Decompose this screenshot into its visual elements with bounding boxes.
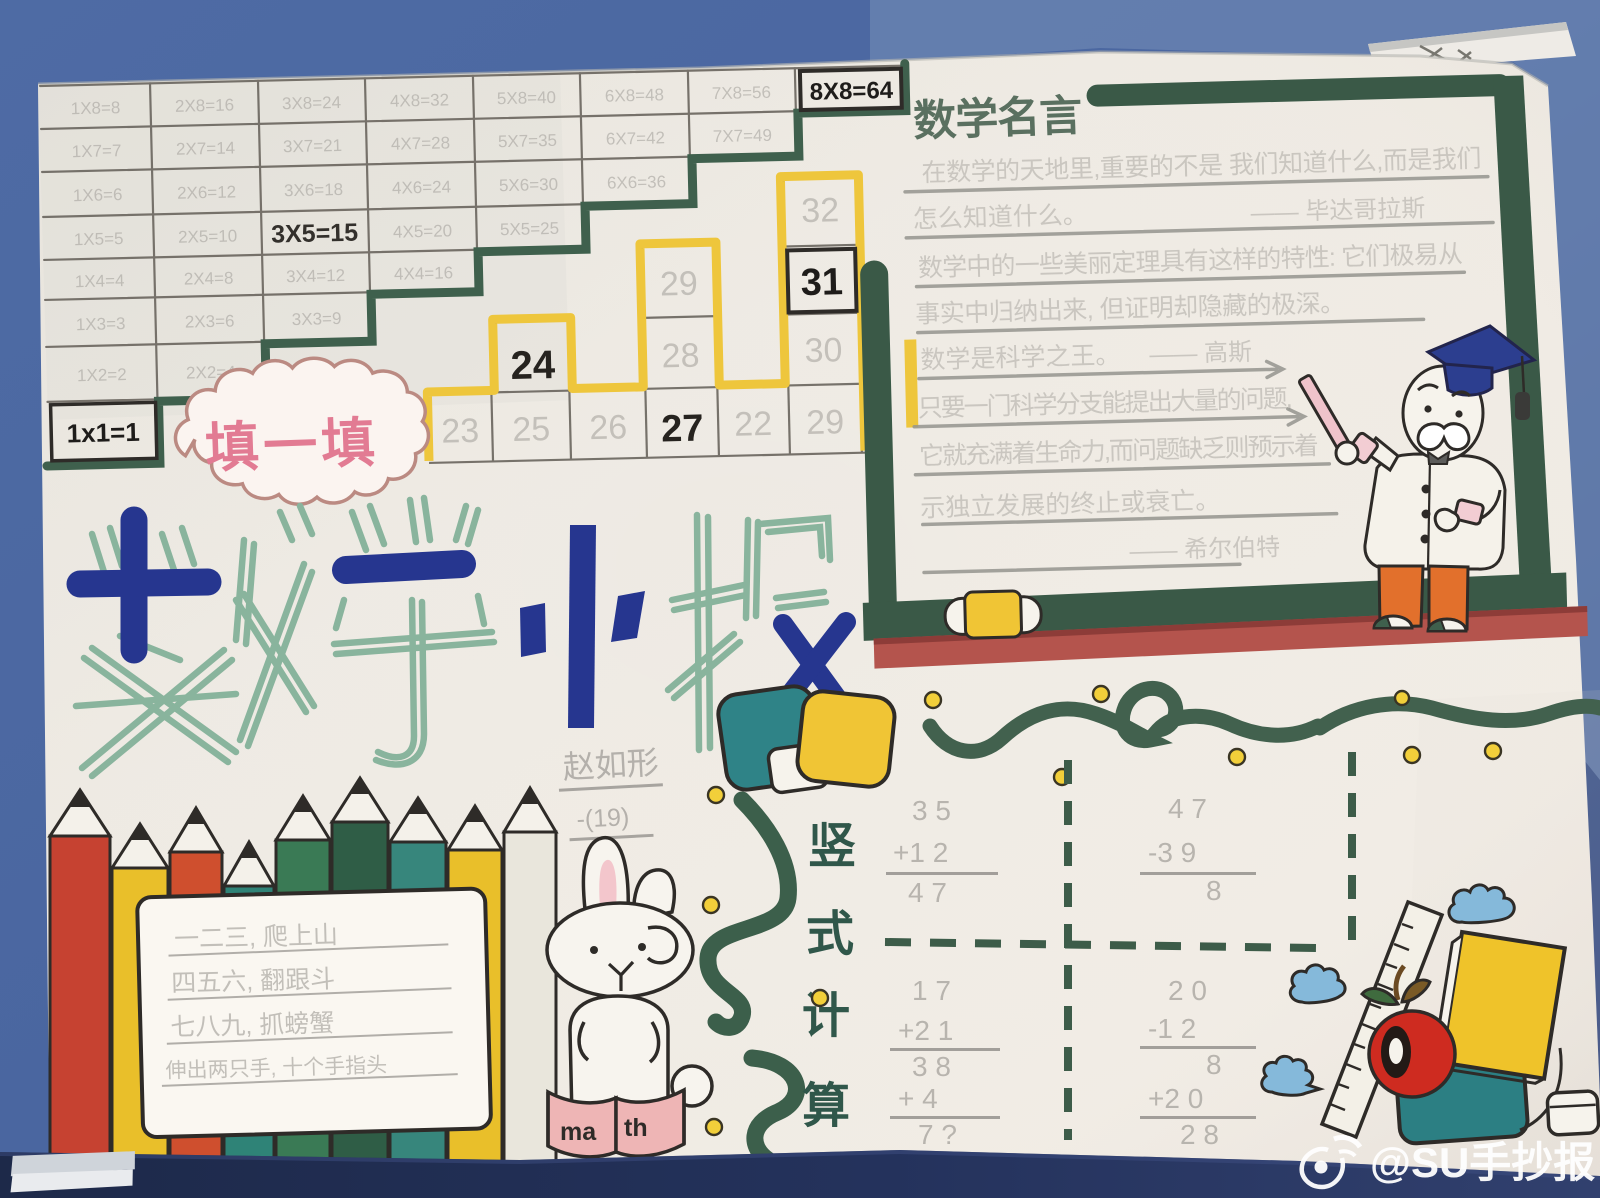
svg-text:3 5: 3 5 xyxy=(912,795,951,826)
svg-text:七八九, 抓螃蟹: 七八九, 抓螃蟹 xyxy=(170,1009,335,1041)
svg-text:25: 25 xyxy=(512,410,551,449)
svg-text:6X8=48: 6X8=48 xyxy=(605,85,665,105)
svg-text:22: 22 xyxy=(734,405,773,444)
svg-text:2X5=10: 2X5=10 xyxy=(178,226,238,246)
svg-text:5X6=30: 5X6=30 xyxy=(499,175,559,195)
svg-text:4X8=32: 4X8=32 xyxy=(390,90,450,110)
svg-text:1X3=3: 1X3=3 xyxy=(76,314,126,334)
svg-text:1X5=5: 1X5=5 xyxy=(74,229,124,249)
svg-text:30: 30 xyxy=(804,331,843,370)
svg-text:式: 式 xyxy=(806,908,854,961)
svg-text:24: 24 xyxy=(510,343,556,388)
svg-text:8X8=64: 8X8=64 xyxy=(809,77,894,106)
svg-text:1X7=7: 1X7=7 xyxy=(72,141,122,161)
svg-text:2X7=14: 2X7=14 xyxy=(176,138,236,158)
svg-text:-1 2: -1 2 xyxy=(1148,1013,1196,1044)
svg-text:8: 8 xyxy=(1206,1049,1222,1080)
svg-text:+2 0: +2 0 xyxy=(1148,1083,1203,1114)
svg-text:-(19): -(19) xyxy=(576,803,630,834)
svg-text:3X8=24: 3X8=24 xyxy=(282,93,342,113)
svg-text:29: 29 xyxy=(660,265,699,304)
svg-text:1X4=4: 1X4=4 xyxy=(75,271,125,291)
svg-text:3X7=21: 3X7=21 xyxy=(283,136,343,156)
svg-text:5X5=25: 5X5=25 xyxy=(500,219,560,239)
svg-text:1x1=1: 1x1=1 xyxy=(66,417,140,449)
svg-text:28: 28 xyxy=(661,337,700,376)
svg-text:怎么知道什么。: 怎么知道什么。 xyxy=(912,201,1088,234)
svg-text:23: 23 xyxy=(441,412,480,451)
svg-text:4X6=24: 4X6=24 xyxy=(392,177,452,197)
svg-text:2 8: 2 8 xyxy=(1180,1119,1219,1150)
svg-text:数学是科学之王。: 数学是科学之王。 xyxy=(920,341,1121,374)
svg-text:7 ?: 7 ? xyxy=(918,1119,957,1150)
svg-text:26: 26 xyxy=(589,408,628,447)
svg-text:算: 算 xyxy=(802,1080,850,1133)
svg-text:3X6=18: 3X6=18 xyxy=(284,180,344,200)
svg-text:—— 毕达哥拉斯: —— 毕达哥拉斯 xyxy=(1250,195,1425,227)
svg-text:1X6=6: 1X6=6 xyxy=(73,185,123,205)
svg-text:32: 32 xyxy=(801,191,840,230)
svg-text:4 7: 4 7 xyxy=(1168,793,1207,824)
svg-text:th: th xyxy=(624,1114,648,1142)
svg-text:ma: ma xyxy=(560,1118,597,1146)
svg-text:@SU手抄报: @SU手抄报 xyxy=(1370,1139,1595,1186)
svg-text:-3 9: -3 9 xyxy=(1148,837,1196,868)
svg-text:3 8: 3 8 xyxy=(912,1051,951,1082)
svg-text:6X6=36: 6X6=36 xyxy=(607,172,667,192)
svg-text:—— 高斯: —— 高斯 xyxy=(1149,339,1252,369)
svg-text:2X6=12: 2X6=12 xyxy=(177,182,237,202)
svg-text:3X5=15: 3X5=15 xyxy=(271,219,359,249)
svg-text:4X4=16: 4X4=16 xyxy=(394,263,454,283)
svg-text:27: 27 xyxy=(661,407,704,450)
svg-text:+ 4: + 4 xyxy=(898,1083,938,1114)
svg-text:2 0: 2 0 xyxy=(1168,975,1207,1006)
svg-text:填一填: 填一填 xyxy=(204,413,380,479)
svg-text:—— 希尔伯特: —— 希尔伯特 xyxy=(1129,534,1280,565)
svg-text:6X7=42: 6X7=42 xyxy=(606,128,666,148)
svg-text:数学名言: 数学名言 xyxy=(913,92,1083,146)
svg-text:2X8=16: 2X8=16 xyxy=(175,95,235,115)
svg-text:1 7: 1 7 xyxy=(912,975,951,1006)
svg-text:4 7: 4 7 xyxy=(908,877,947,908)
svg-text:5X8=40: 5X8=40 xyxy=(497,88,557,108)
svg-text:2X4=8: 2X4=8 xyxy=(184,268,234,288)
svg-text:1X2=2: 1X2=2 xyxy=(77,365,127,385)
svg-text:2X3=6: 2X3=6 xyxy=(185,311,235,331)
svg-text:1X8=8: 1X8=8 xyxy=(71,98,121,118)
svg-text:8: 8 xyxy=(1206,875,1222,906)
svg-text:一二三, 爬上山: 一二三, 爬上山 xyxy=(174,921,339,953)
svg-text:7X8=56: 7X8=56 xyxy=(712,83,772,103)
svg-text:4X5=20: 4X5=20 xyxy=(393,221,453,241)
svg-text:31: 31 xyxy=(800,261,843,304)
svg-text:四五六, 翻跟斗: 四五六, 翻跟斗 xyxy=(171,965,336,997)
svg-text:竖: 竖 xyxy=(808,820,856,873)
svg-text:5X7=35: 5X7=35 xyxy=(498,131,558,151)
svg-text:4X7=28: 4X7=28 xyxy=(391,133,451,153)
svg-text:赵如形: 赵如形 xyxy=(562,744,660,785)
svg-text:3X4=12: 3X4=12 xyxy=(286,266,346,286)
svg-text:3X3=9: 3X3=9 xyxy=(292,309,342,329)
svg-text:+1 2: +1 2 xyxy=(893,837,948,868)
svg-text:+2 1: +2 1 xyxy=(898,1015,953,1046)
svg-text:7X7=49: 7X7=49 xyxy=(713,126,773,146)
svg-text:29: 29 xyxy=(806,403,845,442)
